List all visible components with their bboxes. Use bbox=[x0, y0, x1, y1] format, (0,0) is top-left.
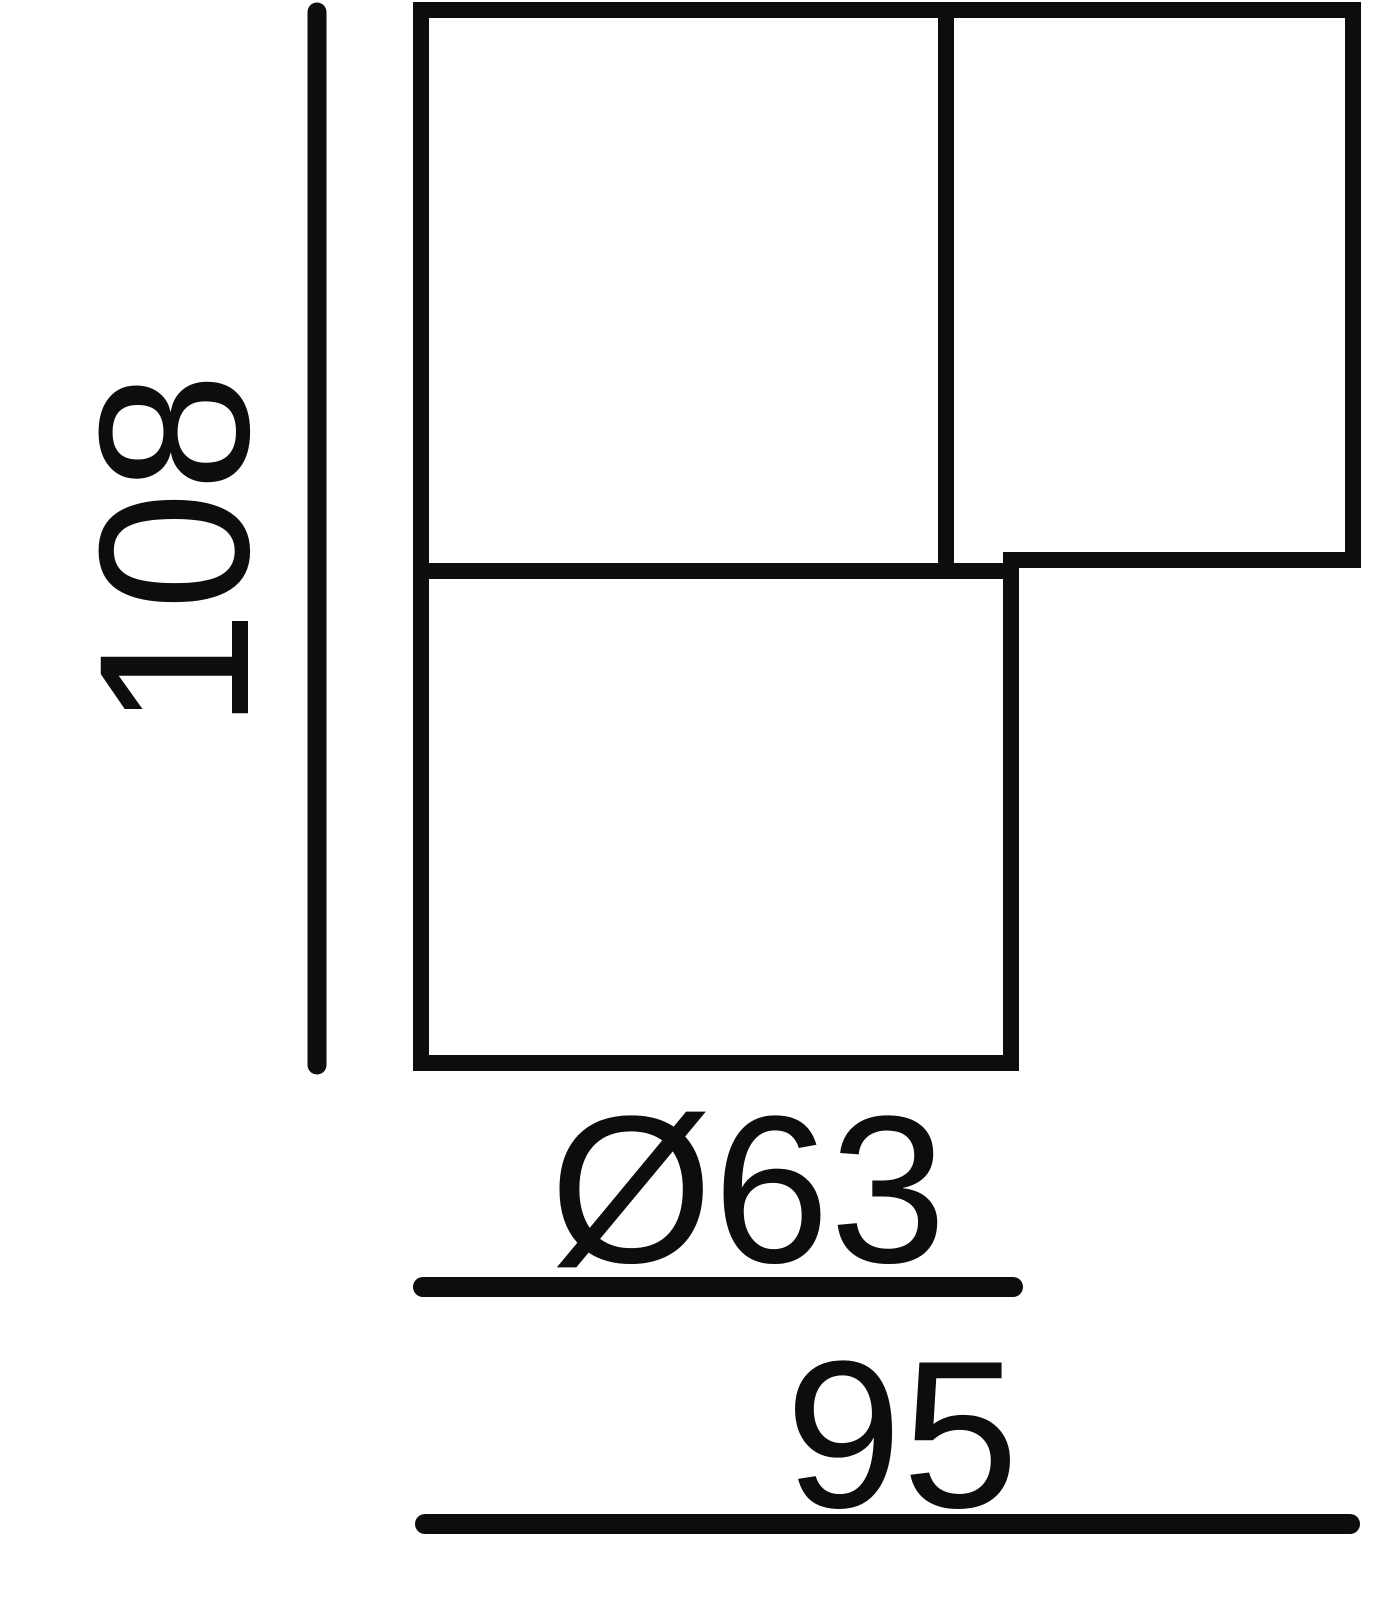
fixture-outline bbox=[413, 2, 1361, 1071]
dimension-drawing-page: 108 Ø63 95 bbox=[0, 0, 1384, 1600]
width-dimension-label: 95 bbox=[785, 1317, 1019, 1552]
diameter-dimension-label: Ø63 bbox=[550, 1072, 947, 1307]
dimension-drawing: 108 Ø63 95 bbox=[0, 0, 1384, 1600]
height-dimension-label: 108 bbox=[55, 372, 294, 729]
